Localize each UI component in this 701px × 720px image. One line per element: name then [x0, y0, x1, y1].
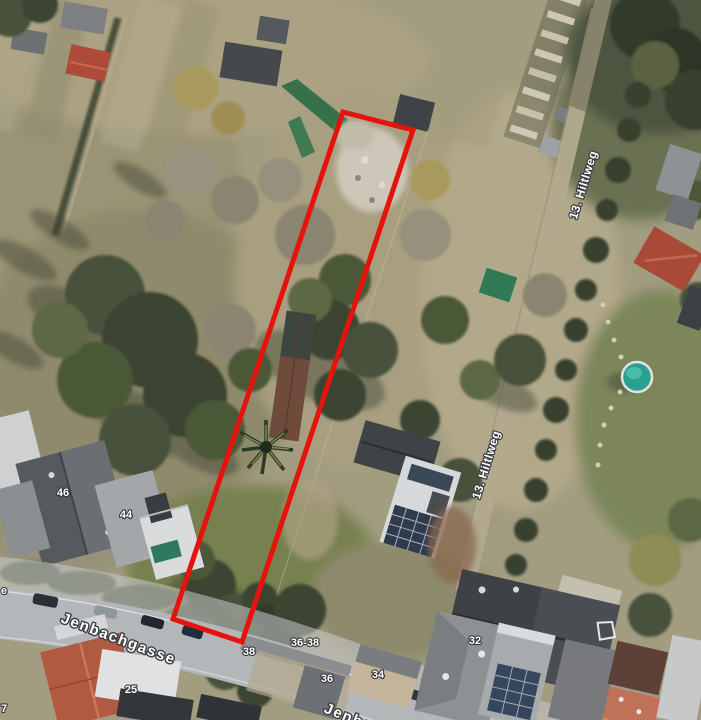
- house-number-36-38: 36-38: [291, 637, 319, 649]
- house-number-44: 44: [120, 509, 133, 521]
- house-number-46: 46: [57, 487, 69, 499]
- house-number-38: 38: [243, 646, 255, 658]
- edge-label-fragment-bottom: 7: [1, 703, 7, 715]
- house-number-34: 34: [372, 669, 385, 681]
- map-canvas[interactable]: Jenbachgasse Jenbach 13. Hiltlweg 13. Hi…: [0, 0, 701, 720]
- house-number-36: 36: [321, 673, 333, 685]
- house-number-32: 32: [469, 635, 481, 647]
- edge-label-fragment-left: e: [1, 585, 7, 597]
- satellite-image: Jenbachgasse Jenbach 13. Hiltlweg 13. Hi…: [0, 0, 701, 720]
- pool: [622, 362, 652, 392]
- house-number-25: 25: [125, 684, 137, 696]
